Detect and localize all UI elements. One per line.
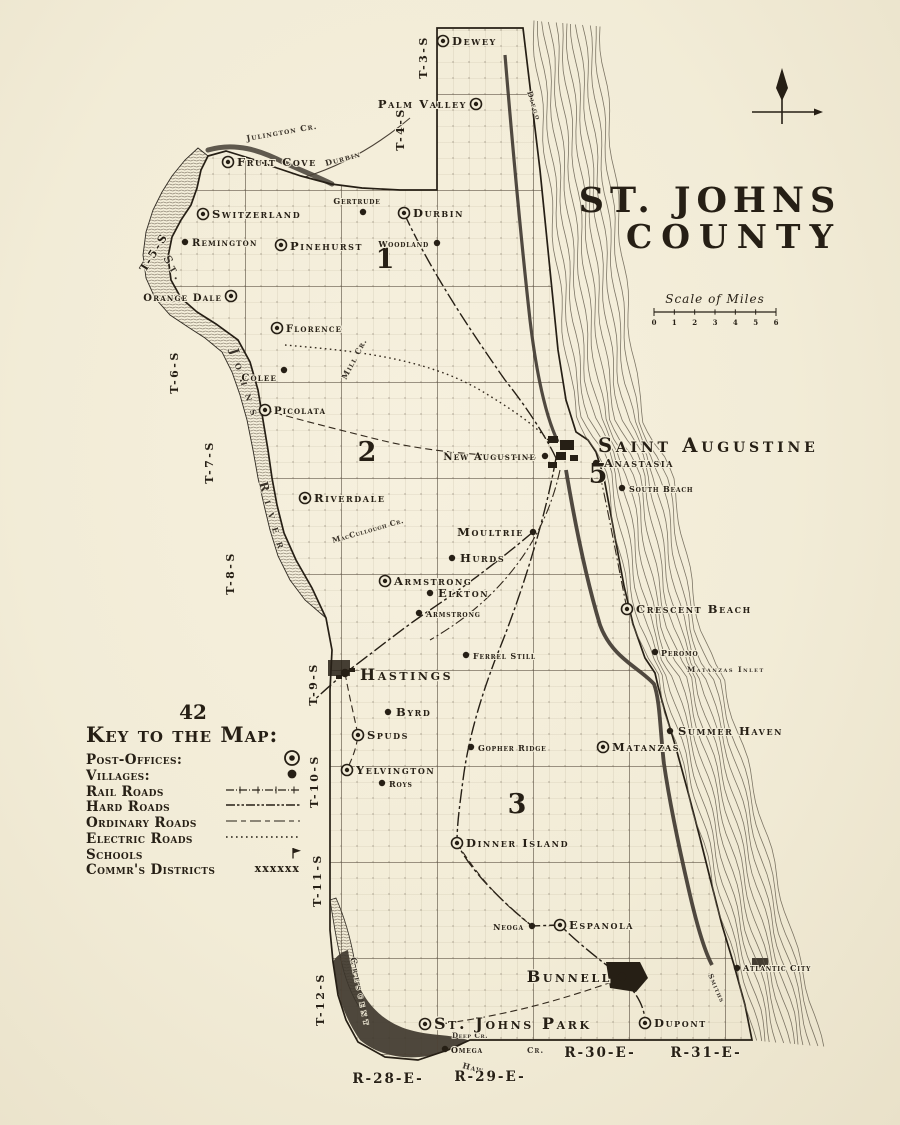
place-remington: Remington <box>182 238 258 249</box>
village-symbol <box>593 460 599 466</box>
village-symbol <box>360 209 366 215</box>
post-office-dot <box>201 212 205 216</box>
district-boundary-marks: xxxxxx <box>255 862 300 875</box>
place-gopher-ridge: Gopher Ridge <box>468 743 547 753</box>
place-label-gopher-ridge: Gopher Ridge <box>478 743 547 753</box>
map-title: ST. JOHNS COUNTY <box>560 183 860 254</box>
place-label-omega: Omega <box>451 1045 483 1055</box>
post-office-dot <box>226 160 230 164</box>
place-label-crescent-beach: Crescent Beach <box>636 602 752 616</box>
legend-item-label: Commr's Districts <box>86 862 215 878</box>
legend-item-label: Rail Roads <box>86 784 164 800</box>
district-number-3: 3 <box>508 789 527 820</box>
place-atlantic-city: Atlantic City <box>734 963 811 973</box>
place-label-elkton: Elkton <box>438 586 489 600</box>
place-label-spuds: Spuds <box>367 728 409 742</box>
place-label-ferrel-still: Ferrel Still <box>473 651 536 661</box>
village-symbol <box>379 780 385 786</box>
place-label-new-augustine: New Augustine <box>443 452 536 463</box>
post-office-dot <box>423 1022 427 1026</box>
place-label-neoga: Neoga <box>493 922 524 932</box>
place-switzerland: Switzerland <box>198 207 302 221</box>
township-label-t-3-s: T-3-S <box>417 35 430 79</box>
township-label-t-12-s: T-12-S <box>314 972 327 1026</box>
county-map-canvas: Julington Cr.DurbinSt.JohnsRiverMill Cr.… <box>0 0 900 1125</box>
legend-item-label: Electric Roads <box>86 831 193 847</box>
scale-bar: 0123456 <box>648 306 782 330</box>
compass-rose <box>752 68 823 124</box>
place-label-gertrude: Gertrude <box>333 196 380 206</box>
place-label-dewey: Dewey <box>452 34 497 48</box>
post-office-dot <box>263 408 267 412</box>
village-symbol <box>182 239 188 245</box>
place-saint-augustine: Saint Augustine <box>598 434 819 457</box>
village-symbol <box>416 610 422 616</box>
place-yelvington: Yelvington <box>342 763 436 777</box>
legend-item-commr-s-districts: Commr's Districtsxxxxxx <box>86 863 304 879</box>
place-label-pinehurst: Pinehurst <box>290 239 363 253</box>
range-label-r-31-e-: R-31-E- <box>670 1045 741 1061</box>
village-symbol <box>463 652 469 658</box>
range-label-r-28-e-: R-28-E- <box>352 1071 423 1087</box>
village-symbol <box>619 485 625 491</box>
place-fruit-cove: Fruit Cove <box>223 155 317 169</box>
place-new-augustine: New Augustine <box>443 452 548 463</box>
legend-item-label: Schools <box>86 847 143 863</box>
scale-tick-4: 4 <box>733 318 738 327</box>
place-label-bunnell: Bunnell <box>527 967 612 986</box>
map-title-line2: COUNTY <box>608 220 860 255</box>
place-crescent-beach: Crescent Beach <box>622 602 752 616</box>
water-label-cr-: Cr. <box>527 1045 544 1055</box>
place-dewey: Dewey <box>438 34 497 48</box>
town-symbol <box>341 669 349 677</box>
post-office-dot <box>441 39 445 43</box>
township-label-t-11-s: T-11-S <box>311 853 324 907</box>
post-office-dot <box>455 841 459 845</box>
place-label-orange-dale: Orange Dale <box>143 293 222 304</box>
post-office-dot <box>601 745 605 749</box>
place-label-south-beach: South Beach <box>629 484 693 494</box>
post-office-dot <box>356 733 360 737</box>
district-boundary-icon: xxxxxx <box>220 860 304 880</box>
place-label-woodland: Woodland <box>377 239 429 249</box>
place-palm-valley: Palm Valley <box>378 97 482 111</box>
place-label-palm-valley: Palm Valley <box>378 97 467 111</box>
post-office-dot <box>643 1021 647 1025</box>
place-label-picolata: Picolata <box>274 406 326 417</box>
district-number-2: 2 <box>358 437 377 468</box>
township-label-t-6-s: T-6-S <box>168 350 181 394</box>
place-label-remington: Remington <box>192 238 258 249</box>
place-south-beach: South Beach <box>619 484 694 494</box>
range-label-r-29-e-: R-29-E- <box>454 1069 525 1085</box>
township-label-t-8-s: T-8-S <box>224 551 237 595</box>
legend-item-label: Post-Offices: <box>86 752 182 768</box>
place-label-fruit-cove: Fruit Cove <box>237 155 317 169</box>
place-label-byrd: Byrd <box>396 705 431 719</box>
village-symbol <box>542 453 548 459</box>
place-label-colee: Colee <box>241 373 277 384</box>
page-number: 42 <box>168 700 218 724</box>
map-key: Key to the Map: Post-Offices:Villages:Ra… <box>86 722 304 878</box>
scale-tick-3: 3 <box>713 318 718 327</box>
water-label-matanzas-inlet: Matanzas Inlet <box>687 665 765 674</box>
scale-tick-0: 0 <box>652 318 657 327</box>
post-office-dot <box>303 496 307 500</box>
scale-tick-2: 2 <box>692 318 697 327</box>
place-label-atlantic-city: Atlantic City <box>742 963 811 973</box>
place-dinner-island: Dinner Island <box>452 836 570 850</box>
village-symbol <box>442 1046 448 1052</box>
village-symbol <box>529 923 535 929</box>
village-symbol <box>734 965 740 971</box>
village-symbol <box>449 555 455 561</box>
legend-item-label: Ordinary Roads <box>86 815 197 831</box>
place-label-hastings: Hastings <box>360 665 453 684</box>
post-office-dot <box>275 326 279 330</box>
post-office-dot <box>229 294 233 298</box>
place-label-durbin: Durbin <box>413 206 464 220</box>
place-ferrel-still: Ferrel Still <box>463 651 536 661</box>
place-label-riverdale: Riverdale <box>314 491 386 505</box>
place-label-peromo: Peromo <box>661 648 698 658</box>
township-label-t-10-s: T-10-S <box>308 754 321 808</box>
village-symbol <box>652 649 658 655</box>
place-spuds: Spuds <box>353 728 410 742</box>
village-symbol <box>468 744 474 750</box>
post-office-dot <box>345 768 349 772</box>
water-label-julington-cr-: Julington Cr. <box>245 121 318 143</box>
post-office-dot <box>279 243 283 247</box>
place-label-moultrie: Moultrie <box>457 525 524 539</box>
place-st-johns-park: St. Johns Park <box>420 1014 592 1033</box>
post-office-dot <box>474 102 478 106</box>
place-anastasia: Anastasia <box>593 456 674 470</box>
place-summer-haven: Summer Haven <box>667 724 783 738</box>
place-label-espanola: Espanola <box>569 918 634 932</box>
county-map-page: Julington Cr.DurbinSt.JohnsRiverMill Cr.… <box>0 0 900 1125</box>
place-label-summer-haven: Summer Haven <box>678 724 783 738</box>
place-label-yelvington: Yelvington <box>355 763 435 777</box>
place-label-armstrong: Armstrong <box>425 609 481 619</box>
place-label-st-johns-park: St. Johns Park <box>434 1014 592 1033</box>
scale-of-miles: Scale of Miles 0123456 <box>645 292 785 334</box>
village-symbol <box>667 728 673 734</box>
township-label-t-9-s: T-9-S <box>307 662 320 706</box>
village-symbol <box>281 367 287 373</box>
village-symbol <box>434 240 440 246</box>
place-label-dupont: Dupont <box>654 1016 707 1030</box>
scale-tick-5: 5 <box>753 318 758 327</box>
map-key-heading: Key to the Map: <box>86 722 304 747</box>
post-office-dot <box>383 579 387 583</box>
place-label-matanzas: Matanzas <box>612 740 680 754</box>
post-office-dot <box>402 211 406 215</box>
place-label-switzerland: Switzerland <box>212 207 301 221</box>
place-label-saint-augustine: Saint Augustine <box>598 434 819 457</box>
range-label-r-30-e-: R-30-E- <box>564 1045 635 1061</box>
legend-item-label: Hard Roads <box>86 799 170 815</box>
place-label-anastasia: Anastasia <box>603 456 674 470</box>
place-label-dinner-island: Dinner Island <box>466 836 569 850</box>
scale-label: Scale of Miles <box>645 292 785 306</box>
place-armstrong: Armstrong <box>416 609 481 619</box>
scale-tick-6: 6 <box>774 318 779 327</box>
post-office-dot <box>625 607 629 611</box>
legend-item-label: Villages: <box>86 768 150 784</box>
water-label-durbin: Durbin <box>324 149 362 168</box>
map-title-line1: ST. JOHNS <box>560 183 860 220</box>
village-symbol <box>427 590 433 596</box>
town-symbol <box>618 973 626 981</box>
place-label-hurds: Hurds <box>460 551 505 565</box>
village-symbol <box>385 709 391 715</box>
place-label-roys: Roys <box>389 779 413 789</box>
township-label-t-7-s: T-7-S <box>203 440 216 484</box>
place-label-florence: Florence <box>286 324 342 335</box>
post-office-dot <box>558 923 562 927</box>
village-symbol <box>530 529 536 535</box>
township-label-t-4-s: T-4-S <box>394 107 407 151</box>
scale-tick-1: 1 <box>672 318 677 327</box>
